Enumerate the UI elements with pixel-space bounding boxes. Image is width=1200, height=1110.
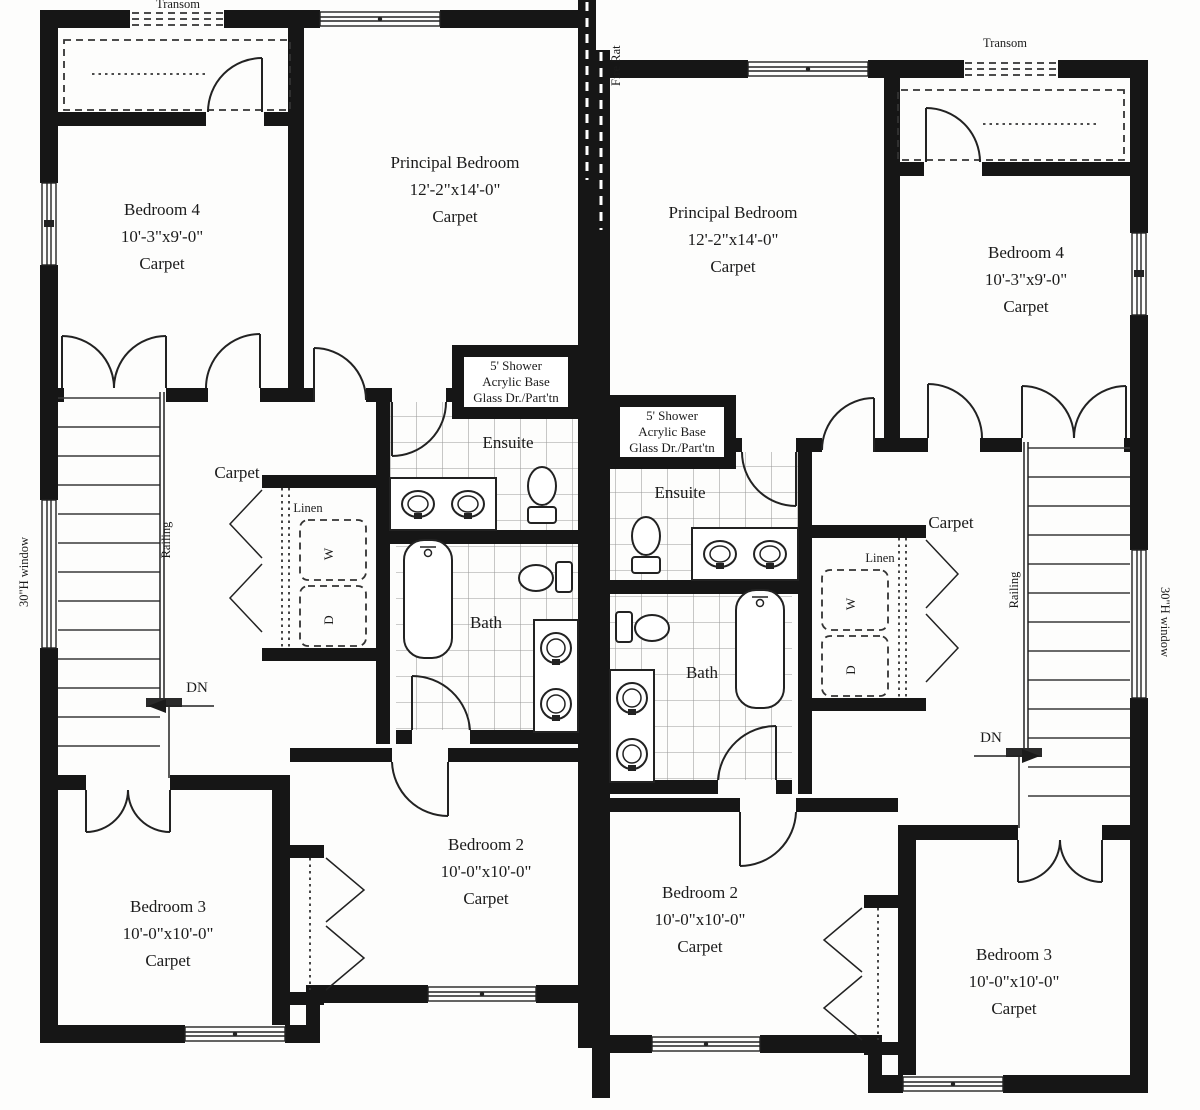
down-label: DN xyxy=(186,680,208,696)
linen-label: Linen xyxy=(865,551,895,565)
svg-text:12'-2"x14'-0": 12'-2"x14'-0" xyxy=(410,180,501,199)
bath-label: Bath xyxy=(686,663,719,682)
transom-label: Transom xyxy=(156,0,200,11)
room-label-principal-bedroom: Principal Bedroom 12'-2"x14'-0" Carpet xyxy=(669,203,798,276)
svg-text:Carpet: Carpet xyxy=(463,889,509,908)
dryer-label: D xyxy=(843,665,858,674)
ensuite-label: Ensuite xyxy=(483,433,534,452)
floorplan-page: Transom Bedroom 4 10'-3"x9'-0" Carpet Pr… xyxy=(0,0,1200,1110)
ensuite-label: Ensuite xyxy=(655,483,706,502)
room-label-bedroom4: Bedroom 4 10'-3"x9'-0" Carpet xyxy=(985,243,1067,316)
railing-label: Railing xyxy=(1007,571,1021,609)
window-height-label: 30"H window xyxy=(17,537,31,607)
svg-text:Carpet: Carpet xyxy=(1003,297,1049,316)
washer-label: W xyxy=(321,547,336,560)
down-label: DN xyxy=(980,730,1002,746)
svg-text:Glass Dr./Part'tn: Glass Dr./Part'tn xyxy=(473,390,559,405)
dryer-label: D xyxy=(321,615,336,624)
svg-text:Principal Bedroom: Principal Bedroom xyxy=(391,153,520,172)
svg-text:10'-0"x10'-0": 10'-0"x10'-0" xyxy=(969,972,1060,991)
svg-text:Acrylic Base: Acrylic Base xyxy=(482,374,550,389)
svg-text:10'-0"x10'-0": 10'-0"x10'-0" xyxy=(123,924,214,943)
svg-text:Carpet: Carpet xyxy=(710,257,756,276)
transom-label: Transom xyxy=(983,36,1027,50)
room-label-bedroom3: Bedroom 3 10'-0"x10'-0" Carpet xyxy=(969,945,1060,1018)
hall-floor-label: Carpet xyxy=(928,513,974,532)
svg-text:Carpet: Carpet xyxy=(145,951,191,970)
svg-text:5' Shower: 5' Shower xyxy=(490,358,542,373)
svg-text:Carpet: Carpet xyxy=(677,937,723,956)
room-label-bedroom3: Bedroom 3 10'-0"x10'-0" Carpet xyxy=(123,897,214,970)
linen-label: Linen xyxy=(293,501,323,515)
svg-text:Acrylic Base: Acrylic Base xyxy=(638,424,706,439)
svg-text:10'-0"x10'-0": 10'-0"x10'-0" xyxy=(441,862,532,881)
svg-text:Carpet: Carpet xyxy=(991,999,1037,1018)
svg-text:Bedroom 4: Bedroom 4 xyxy=(988,243,1065,262)
svg-text:Principal Bedroom: Principal Bedroom xyxy=(669,203,798,222)
hall-floor-label: Carpet xyxy=(214,463,260,482)
svg-text:Bedroom 4: Bedroom 4 xyxy=(124,200,201,219)
svg-text:10'-0"x10'-0": 10'-0"x10'-0" xyxy=(655,910,746,929)
room-label-bedroom2: Bedroom 2 10'-0"x10'-0" Carpet xyxy=(441,835,532,908)
svg-text:Bedroom 2: Bedroom 2 xyxy=(662,883,738,902)
svg-text:10'-3"x9'-0": 10'-3"x9'-0" xyxy=(985,270,1067,289)
svg-text:Bedroom 3: Bedroom 3 xyxy=(976,945,1052,964)
svg-text:Bedroom 3: Bedroom 3 xyxy=(130,897,206,916)
svg-text:Carpet: Carpet xyxy=(432,207,478,226)
fire-rating-label: Fire Rat xyxy=(609,45,623,86)
railing-label: Railing xyxy=(159,521,173,559)
room-label-principal-bedroom: Principal Bedroom 12'-2"x14'-0" Carpet xyxy=(391,153,520,226)
bath-label: Bath xyxy=(470,613,503,632)
svg-text:Glass Dr./Part'tn: Glass Dr./Part'tn xyxy=(629,440,715,455)
svg-text:10'-3"x9'-0": 10'-3"x9'-0" xyxy=(121,227,203,246)
washer-label: W xyxy=(843,597,858,610)
floorplan-canvas: Transom Bedroom 4 10'-3"x9'-0" Carpet Pr… xyxy=(0,0,1200,1110)
room-label-bedroom4: Bedroom 4 10'-3"x9'-0" Carpet xyxy=(121,200,203,273)
room-label-bedroom2: Bedroom 2 10'-0"x10'-0" Carpet xyxy=(655,883,746,956)
svg-text:5' Shower: 5' Shower xyxy=(646,408,698,423)
svg-text:Carpet: Carpet xyxy=(139,254,185,273)
svg-text:Bedroom 2: Bedroom 2 xyxy=(448,835,524,854)
svg-text:12'-2"x14'-0": 12'-2"x14'-0" xyxy=(688,230,779,249)
window-height-label: 30"H window xyxy=(1158,587,1172,657)
